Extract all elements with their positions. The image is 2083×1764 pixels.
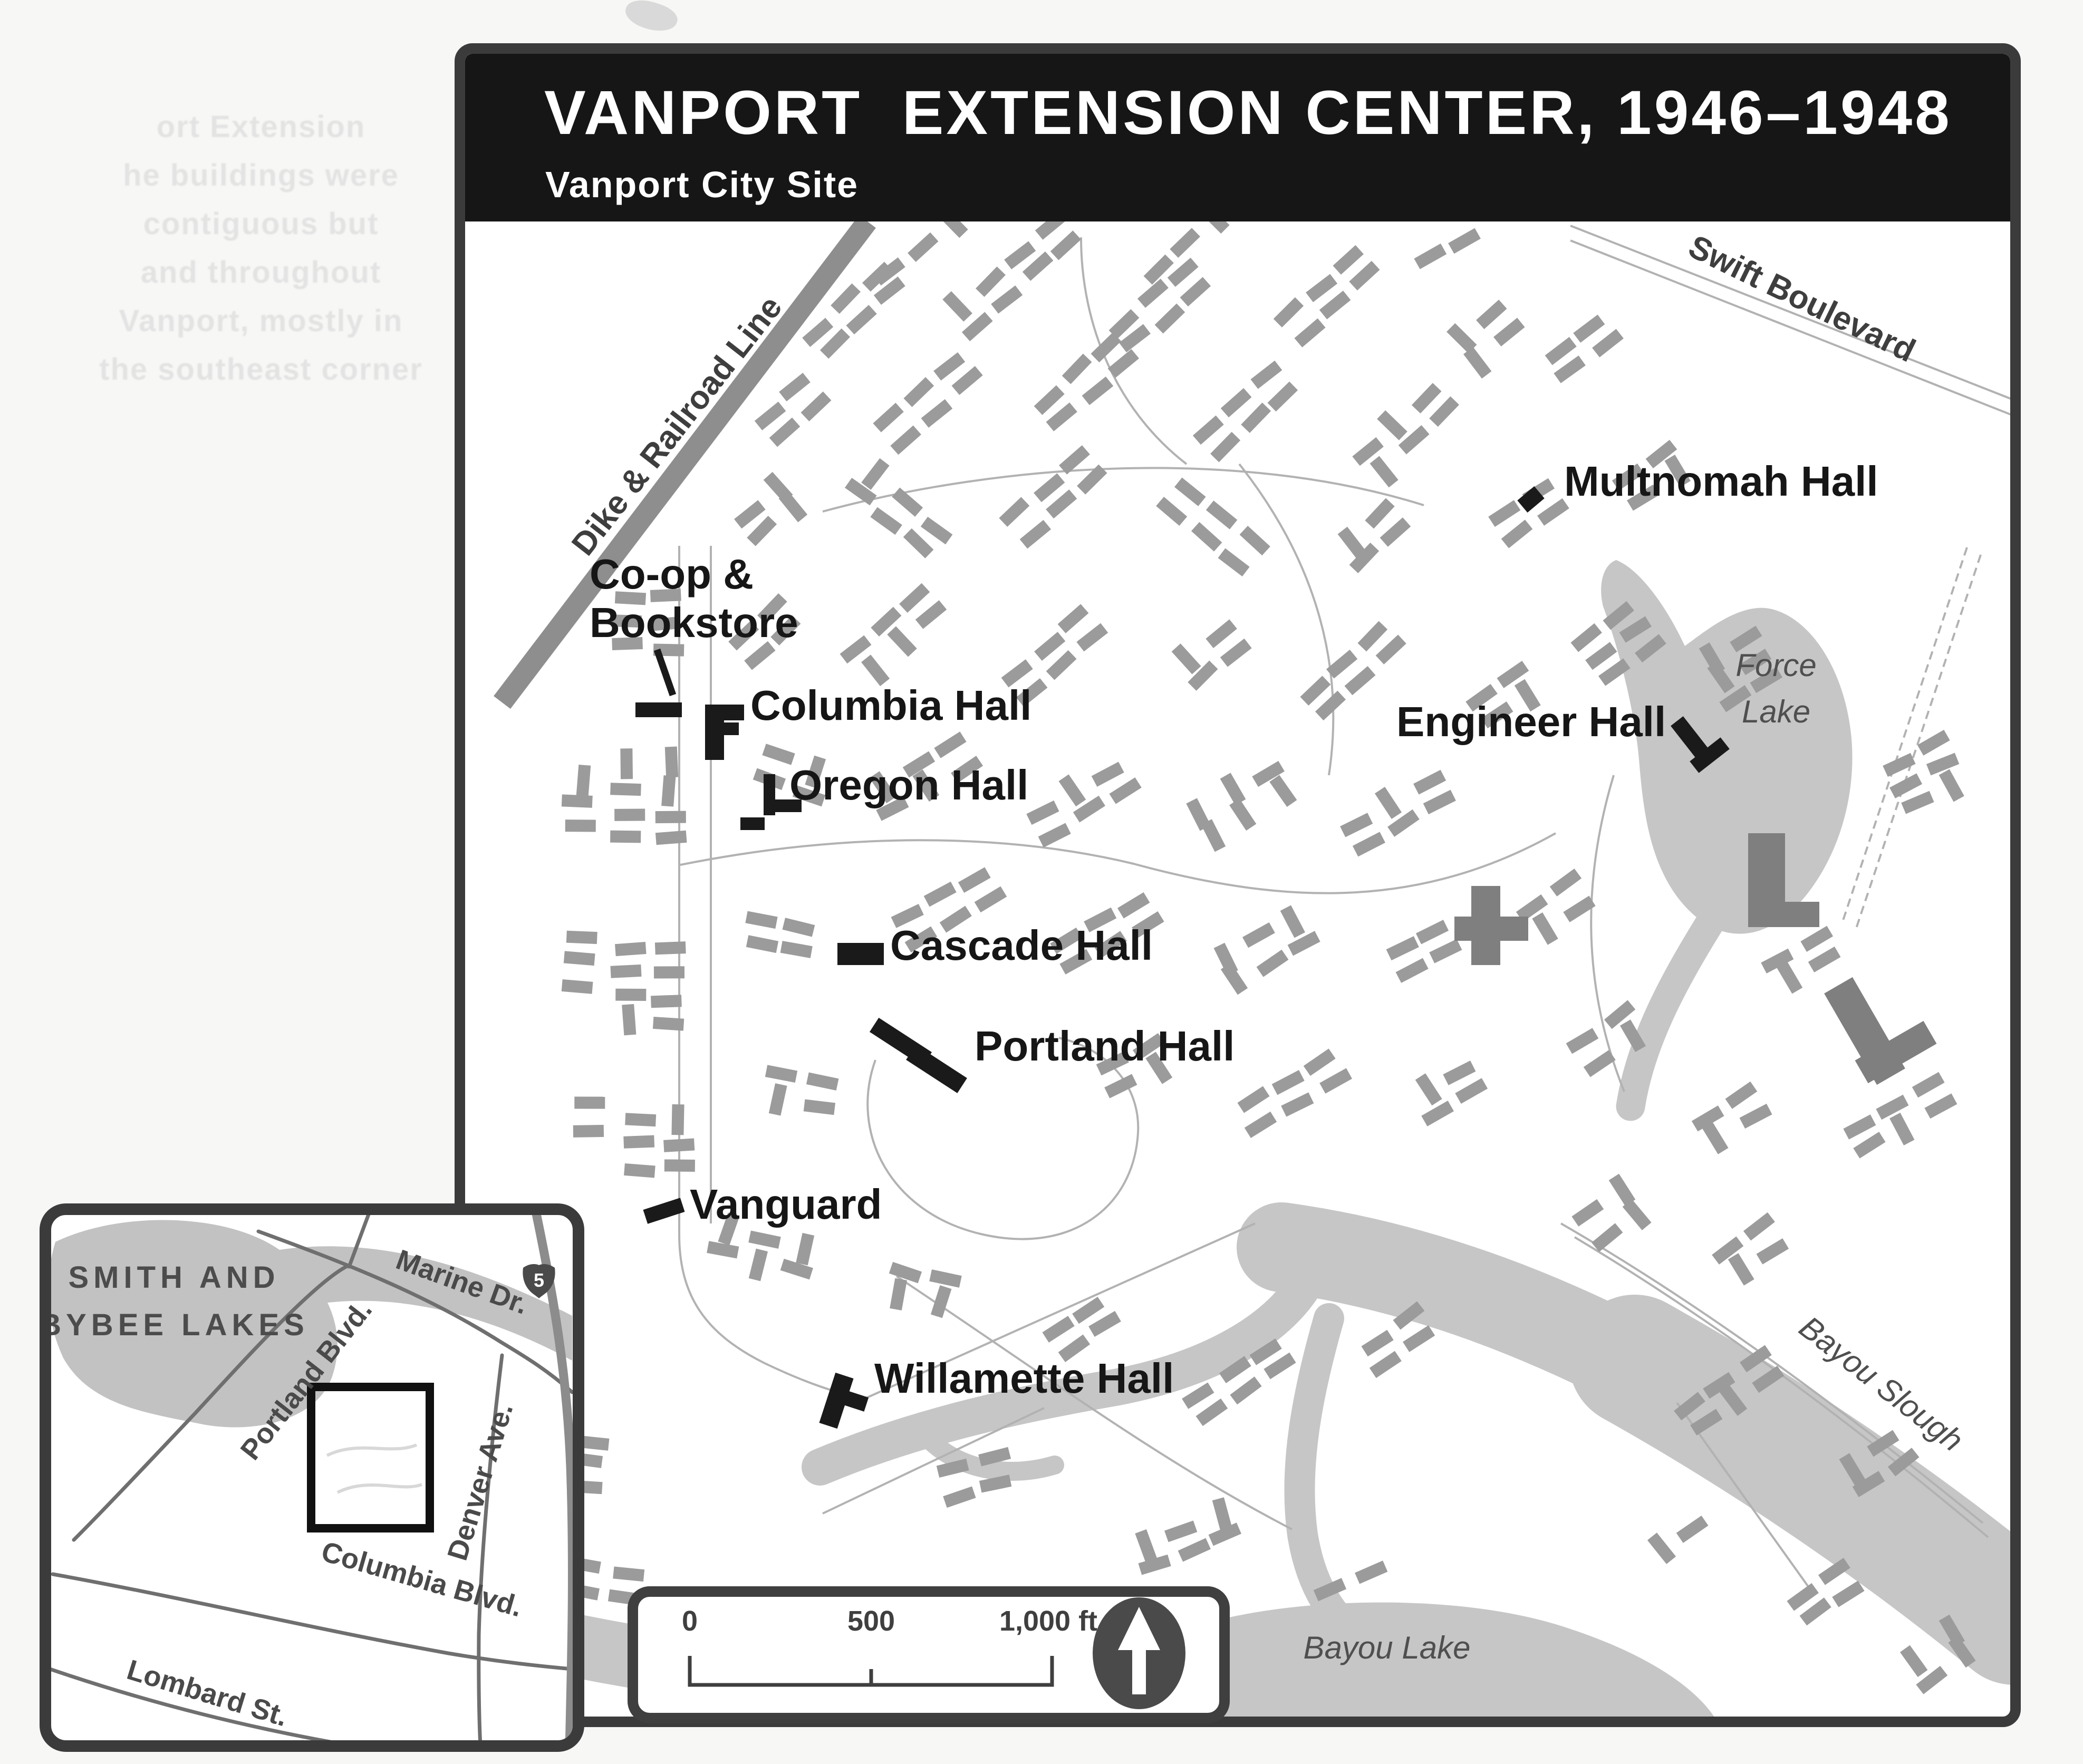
apartment-building: [1180, 277, 1211, 306]
apartment-building: [1237, 1086, 1269, 1113]
apartment-building: [1269, 775, 1297, 807]
apartment-building: [1319, 1068, 1352, 1093]
apartment-building: [1206, 500, 1237, 529]
apartment-building: [1326, 650, 1357, 679]
apartment-building: [1917, 730, 1950, 756]
large-building: [1748, 902, 1819, 927]
apartment-building: [1853, 1132, 1885, 1158]
apartment-building: [1201, 819, 1226, 852]
apartment-building: [938, 221, 968, 238]
apartment-building: [1174, 478, 1206, 506]
apartment-building: [565, 820, 596, 832]
apartment-building: [846, 305, 876, 334]
north-arrow-stem: [1132, 1644, 1146, 1694]
apartment-building: [1058, 604, 1089, 633]
apartment-building: [1924, 1093, 1957, 1119]
apartment-building: [749, 1249, 768, 1281]
apartment-building: [780, 941, 813, 958]
apartment-building: [655, 831, 687, 845]
apartment-building: [1623, 1199, 1652, 1230]
map-title: VANPORT EXTENSION CENTER, 1946–1948: [544, 77, 1952, 149]
apartment-building: [765, 1065, 797, 1083]
scale-bar: 05001,000 ft: [628, 1586, 1230, 1723]
apartment-building: [566, 931, 597, 944]
water-channel: [1631, 917, 1714, 1106]
apartment-building: [665, 747, 678, 778]
inset-road-label: Lombard St.: [123, 1654, 292, 1732]
apartment-building: [755, 402, 786, 430]
apartment-building: [1647, 1532, 1676, 1564]
apartment-building: [1493, 317, 1525, 346]
inset-slough-scribble: [337, 1485, 422, 1492]
apartment-building: [899, 583, 930, 613]
apartment-building: [1267, 381, 1298, 411]
landmark-building-icon: [724, 722, 739, 735]
apartment-building: [1386, 936, 1419, 960]
apartment-building: [1676, 1516, 1709, 1543]
apartment-building: [1376, 635, 1406, 664]
apartment-building: [1306, 274, 1337, 302]
landmark-label: Multnomah Hall: [1564, 458, 1878, 505]
apartment-building: [1415, 1073, 1442, 1105]
apartment-building: [1218, 548, 1250, 576]
apartment-building: [610, 831, 641, 843]
apartment-building: [1443, 1061, 1476, 1085]
apartment-building: [1370, 456, 1399, 488]
apartment-building: [1172, 643, 1201, 674]
apartment-building: [1196, 1399, 1228, 1426]
apartment-building: [748, 1231, 780, 1249]
apartment-building: [796, 1233, 814, 1266]
apartment-building: [1304, 1048, 1336, 1076]
apartment-building: [890, 1278, 907, 1310]
water-label: Bayou Lake: [1304, 1630, 1471, 1665]
landmark-building-icon: [840, 1390, 869, 1411]
apartment-building: [1020, 520, 1051, 549]
apartment-building: [924, 882, 957, 907]
landmark-label: Portland Hall: [975, 1023, 1235, 1069]
ghost-text-line: and throughout: [55, 248, 467, 297]
apartment-building: [933, 352, 965, 381]
large-building: [1454, 917, 1528, 941]
apartment-building: [942, 291, 972, 322]
apartment-building: [574, 1097, 605, 1109]
scale-tick-label: 1,000 ft: [999, 1605, 1097, 1637]
apartment-building: [1250, 361, 1282, 389]
inset-road-label: Columbia Blvd.: [318, 1536, 526, 1623]
map-header: VANPORT EXTENSION CENTER, 1946–1948 Vanp…: [465, 54, 2010, 221]
apartment-building: [1463, 347, 1491, 379]
road: [1570, 240, 2010, 418]
apartment-building: [655, 941, 686, 955]
apartment-building: [991, 285, 1023, 313]
apartment-building: [573, 1125, 604, 1138]
ghost-text-line: the southeast corner: [55, 345, 467, 394]
apartment-building: [1413, 770, 1446, 795]
landmark-label: Cascade Hall: [890, 922, 1153, 969]
apartment-building: [1412, 383, 1442, 413]
road: [1239, 464, 1333, 775]
inset-road-label: Denver Ave.: [441, 1400, 519, 1564]
apartment-building: [1300, 676, 1330, 706]
apartment-building: [613, 1566, 644, 1582]
scale-tick-label: 0: [682, 1605, 698, 1637]
apartment-building: [1229, 798, 1256, 831]
apartment-building: [1220, 639, 1252, 667]
landmark-building-icon: [740, 817, 765, 830]
inset-map-canvas: SMITH ANDBYBEE LAKESMarine Dr.Portland B…: [51, 1215, 573, 1740]
path-road: [1843, 547, 1967, 920]
apartment-building: [804, 1100, 835, 1115]
apartment-building: [1592, 329, 1624, 358]
apartment-building: [1082, 377, 1114, 405]
apartment-building: [779, 491, 807, 522]
apartment-building: [1288, 931, 1320, 956]
apartment-building: [1365, 498, 1394, 528]
apartment-building: [887, 626, 917, 657]
apartment-building: [782, 918, 815, 937]
apartment-building: [1396, 958, 1429, 983]
apartment-building: [1592, 1223, 1623, 1252]
apartment-building: [890, 426, 921, 455]
apartment-building: [1333, 245, 1363, 275]
landmark-building-icon: [837, 943, 884, 965]
apartment-building: [654, 966, 684, 978]
apartment-building: [576, 765, 591, 796]
apartment-building: [1357, 621, 1387, 652]
apartment-building: [707, 1241, 739, 1258]
apartment-building: [1429, 397, 1459, 427]
main-map: VANPORT EXTENSION CENTER, 1946–1948 Vanp…: [455, 43, 2021, 1727]
apartment-building: [624, 1163, 655, 1178]
apartment-building: [671, 1104, 684, 1135]
apartment-building: [1059, 774, 1086, 806]
apartment-building: [1349, 261, 1380, 291]
apartment-building: [1585, 642, 1617, 670]
apartment-building: [929, 1269, 962, 1288]
apartment-building: [1832, 1580, 1864, 1607]
apartment-building: [562, 794, 593, 808]
apartment-building: [1570, 623, 1602, 652]
apartment-building: [903, 528, 934, 558]
ghost-text-line: ort Extension: [55, 103, 467, 151]
apartment-building: [1178, 1538, 1211, 1562]
landmark-label: Bookstore: [590, 599, 798, 646]
apartment-building: [870, 507, 902, 535]
apartment-building: [1370, 1351, 1402, 1378]
apartment-building: [1164, 1520, 1197, 1542]
apartment-building: [1034, 632, 1065, 661]
apartment-building: [1488, 500, 1520, 527]
apartment-building: [1315, 691, 1346, 720]
apartment-building: [1926, 753, 1959, 775]
apartment-building: [1144, 254, 1174, 284]
apartment-building: [661, 775, 676, 807]
apartment-building: [1109, 777, 1141, 804]
apartment-building: [1191, 522, 1222, 552]
apartment-building: [801, 391, 832, 421]
apartment-building: [1757, 1238, 1789, 1265]
apartment-building: [934, 731, 966, 758]
apartment-building: [1050, 230, 1081, 260]
apartment-building: [746, 935, 778, 953]
apartment-building: [610, 783, 641, 796]
water-label: Force: [1735, 648, 1816, 683]
apartment-building: [921, 517, 953, 545]
apartment-building: [651, 995, 682, 1008]
apartment-building: [655, 811, 686, 824]
leader-line: [657, 650, 673, 695]
apartment-building: [861, 458, 889, 490]
apartment-building: [562, 979, 593, 994]
apartment-building: [1777, 961, 1802, 994]
apartment-building: [1416, 920, 1449, 944]
landmark-building-icon: [906, 1045, 967, 1093]
apartment-building: [1220, 773, 1246, 805]
apartment-building: [1156, 497, 1187, 526]
apartment-building: [1743, 1212, 1775, 1241]
apartment-building: [1340, 813, 1373, 837]
apartment-building: [1042, 1316, 1074, 1343]
apartment-building: [1072, 1297, 1104, 1324]
apartment-building: [1377, 410, 1407, 440]
apartment-building: [1062, 354, 1092, 384]
apartment-building: [1170, 228, 1200, 258]
apartment-building: [664, 1159, 695, 1172]
road: [1591, 775, 1624, 1092]
apartment-building: [1272, 1070, 1305, 1095]
apartment-building: [1046, 650, 1077, 680]
apartment-building: [769, 418, 801, 447]
apartment-building: [1901, 791, 1934, 814]
apartment-building: [1038, 823, 1071, 847]
apartment-building: [1550, 869, 1581, 897]
apartment-building: [1257, 950, 1289, 977]
apartment-building: [1319, 291, 1351, 319]
apartment-building: [622, 1004, 636, 1036]
path-road: [1856, 555, 1981, 928]
apartment-building: [1375, 787, 1402, 819]
ghost-text-block: ort Extensionhe buildings werecontiguous…: [55, 103, 467, 394]
inset-map: SMITH ANDBYBEE LAKESMarine Dr.Portland B…: [40, 1203, 584, 1752]
apartment-building: [921, 399, 953, 428]
apartment-building: [1912, 1072, 1945, 1098]
interstate-5-shield-number: 5: [534, 1269, 544, 1291]
apartment-building: [1026, 801, 1059, 825]
apartment-building: [1380, 517, 1411, 547]
apartment-building: [745, 911, 777, 929]
scale-tick-label: 500: [847, 1605, 895, 1637]
apartment-building: [653, 1017, 684, 1031]
apartment-building: [1221, 388, 1252, 418]
apartment-building: [564, 951, 595, 966]
apartment-building: [1571, 1199, 1604, 1227]
apartment-building: [1076, 623, 1108, 652]
apartment-building: [1281, 1092, 1314, 1116]
apartment-building: [1876, 1095, 1908, 1120]
apartment-building: [1889, 1113, 1914, 1145]
apartment-building: [1212, 1497, 1232, 1530]
landmark-label: Oregon Hall: [789, 761, 1028, 808]
apartment-building: [1448, 228, 1481, 254]
scale-bracket: [690, 1656, 1052, 1685]
apartment-building: [614, 809, 645, 821]
apartment-building: [1532, 912, 1558, 945]
apartment-building: [1108, 349, 1139, 378]
landmark-label: Engineer Hall: [1396, 698, 1666, 745]
apartment-building: [1728, 1253, 1754, 1285]
apartment-building: [1355, 1560, 1387, 1584]
apartment-building: [769, 1083, 787, 1116]
apartment-building: [1429, 939, 1462, 963]
apartment-building: [915, 600, 947, 629]
apartment-building: [806, 1072, 838, 1090]
apartment-building: [610, 965, 641, 978]
apartment-building: [1245, 1112, 1277, 1138]
apartment-building: [1294, 319, 1325, 348]
road: [680, 833, 1556, 893]
apartment-building: [1088, 1311, 1121, 1337]
apartment-building: [908, 233, 938, 262]
apartment-building: [615, 942, 646, 956]
apartment-building: [1423, 790, 1456, 814]
landmark-label: Willamette Hall: [874, 1355, 1174, 1402]
ghost-text-line: he buildings were: [55, 151, 467, 200]
apartment-building: [999, 497, 1029, 527]
ghost-text-line: contiguous but: [55, 200, 467, 248]
apartment-building: [1476, 300, 1507, 329]
apartment-building: [1193, 416, 1224, 445]
apartment-building: [1573, 315, 1605, 343]
apartment-building: [1206, 619, 1237, 648]
apartment-building: [1584, 1050, 1616, 1077]
apartment-building: [1135, 1529, 1157, 1562]
apartment-building: [615, 989, 646, 1001]
map-subtitle: Vanport City Site: [545, 163, 859, 206]
road-label: Dike & Railroad Line: [565, 290, 789, 563]
inset-slough-scribble: [327, 1445, 417, 1455]
apartment-building: [873, 403, 903, 432]
map-canvas: Co-op &BookstoreColumbia HallOregon Hall…: [465, 221, 2010, 1717]
apartment-building: [1345, 666, 1376, 695]
apartment-building: [623, 1135, 654, 1149]
apartment-building: [625, 1113, 656, 1126]
apartment-building: [1403, 1325, 1435, 1352]
apartment-building: [1702, 1122, 1729, 1154]
apartment-building: [1240, 526, 1270, 555]
water-label: Lake: [1742, 694, 1810, 729]
apartment-building: [1092, 761, 1124, 786]
scan-artifact: [622, 0, 680, 37]
apartment-building: [1808, 947, 1841, 972]
apartment-building: [1199, 221, 1229, 234]
apartment-building: [1117, 892, 1150, 919]
landmark-building-icon: [764, 774, 775, 815]
apartment-building: [1900, 1645, 1927, 1678]
apartment-building: [1361, 1330, 1393, 1357]
apartment-building: [1939, 769, 1964, 802]
landmark-building-icon: [635, 702, 682, 717]
landmark-building-icon: [705, 705, 724, 760]
apartment-building: [620, 748, 633, 779]
scale-bar-canvas: 05001,000 ft: [638, 1597, 1219, 1713]
ghost-text-line: Vanport, mostly in: [55, 297, 467, 345]
apartment-building: [1035, 221, 1066, 240]
apartment-building: [1501, 519, 1533, 548]
apartment-building: [1421, 1101, 1454, 1126]
road: [1570, 226, 2010, 402]
apartment-building: [1800, 926, 1833, 952]
map-extent-indicator: [311, 1387, 430, 1528]
apartment-building: [1353, 832, 1385, 856]
apartment-building: [831, 283, 861, 314]
landmark-label: Vanguard: [690, 1181, 882, 1228]
apartment-building: [1566, 1028, 1599, 1054]
road: [679, 546, 865, 1399]
inset-lake-label: SMITH AND: [68, 1260, 279, 1295]
apartment-building: [1280, 905, 1305, 938]
apartment-building: [1414, 244, 1446, 269]
apartment-building: [1242, 922, 1275, 948]
apartment-building: [975, 886, 1007, 913]
apartment-building: [1274, 297, 1304, 327]
apartment-building: [1455, 1078, 1488, 1104]
apartment-building: [1739, 1104, 1772, 1129]
apartment-building: [1725, 1082, 1758, 1109]
apartment-building: [903, 377, 934, 407]
apartment-building: [1155, 304, 1185, 334]
apartment-building: [1843, 1114, 1876, 1139]
inset-lake-label: BYBEE LAKES: [51, 1308, 309, 1342]
apartment-building: [952, 366, 983, 395]
apartment-building: [943, 1487, 976, 1508]
apartment-building: [1241, 402, 1271, 433]
apartment-building: [1883, 753, 1915, 777]
landmark-label: Co-op &: [590, 551, 754, 597]
apartment-building: [1230, 1376, 1261, 1404]
apartment-building: [976, 266, 1006, 297]
apartment-building: [779, 373, 811, 401]
apartment-building: [958, 867, 991, 893]
apartment-building: [1210, 432, 1240, 462]
apartment-building: [663, 1139, 695, 1152]
water-channel: [1299, 1318, 1371, 1645]
landmark-label: Columbia Hall: [750, 682, 1031, 729]
